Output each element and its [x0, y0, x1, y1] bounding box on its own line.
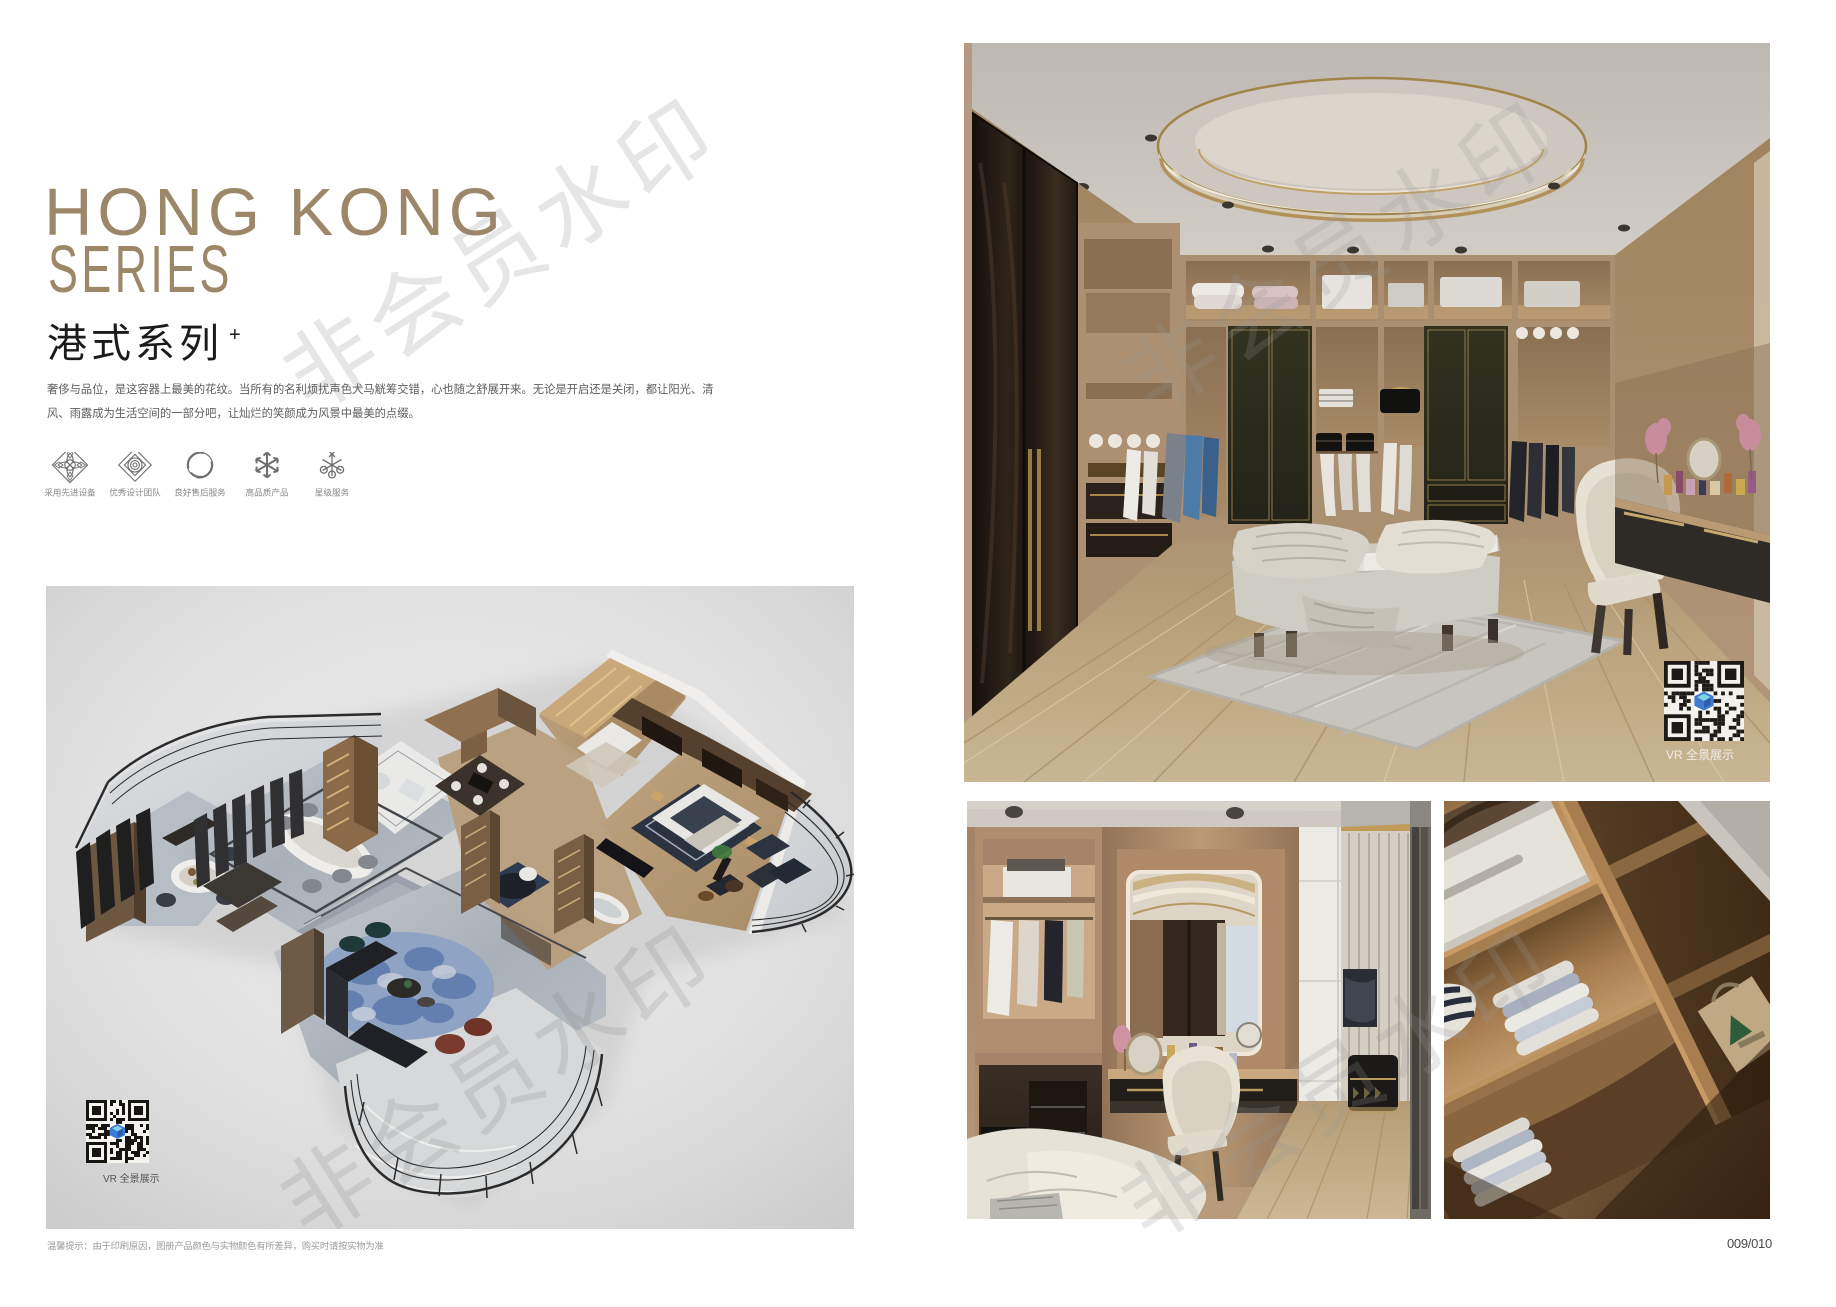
- svg-text:VR 全景展示: VR 全景展示: [1666, 747, 1734, 762]
- svg-text:采用先进设备: 采用先进设备: [44, 487, 96, 498]
- svg-text:VR 全景展示: VR 全景展示: [103, 1172, 160, 1185]
- svg-text:高品质产品: 高品质产品: [246, 487, 289, 498]
- svg-text:良好售后服务: 良好售后服务: [174, 487, 226, 498]
- svg-text:优秀设计团队: 优秀设计团队: [109, 487, 161, 498]
- svg-text:星级服务: 星级服务: [315, 487, 350, 498]
